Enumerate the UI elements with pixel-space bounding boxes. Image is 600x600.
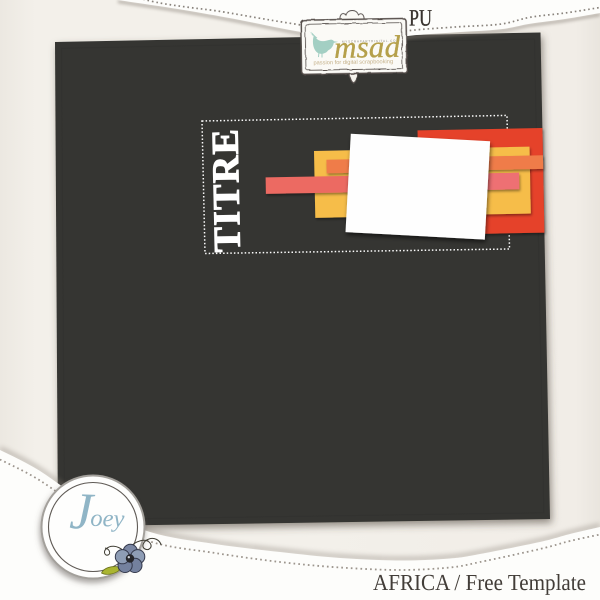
svg-text:passion for digital scrapbooki: passion for digital scrapbooking (313, 58, 393, 66)
svg-text:AFRICA / Free Template: AFRICA / Free Template (373, 570, 586, 595)
svg-text:TITRE: TITRE (204, 128, 249, 253)
svg-text:PU: PU (409, 6, 432, 32)
